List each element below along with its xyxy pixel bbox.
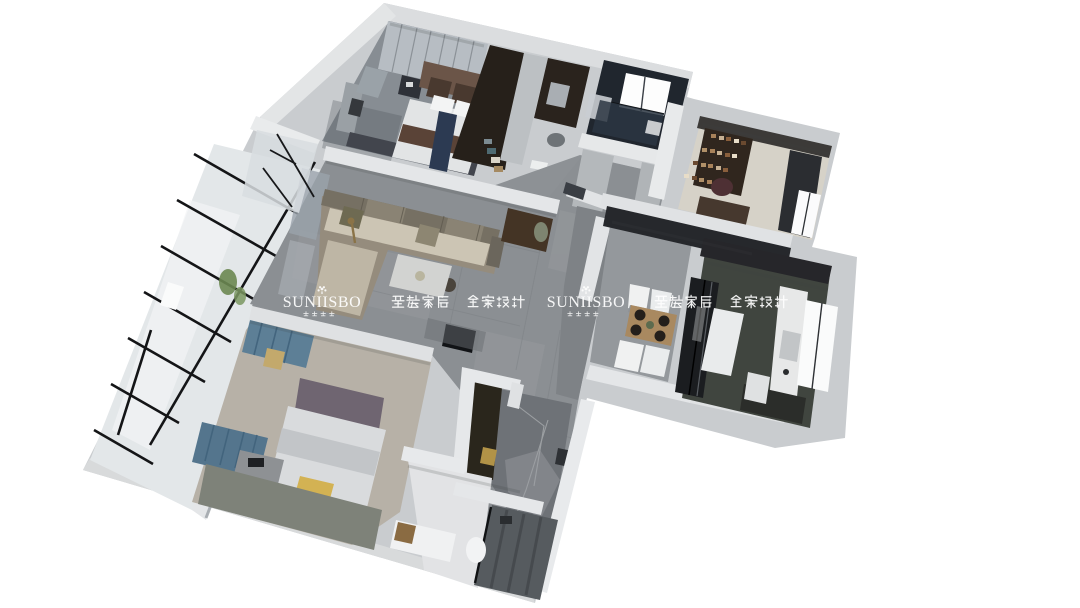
svg-text:SUNIISBO: SUNIISBO	[547, 294, 626, 311]
svg-text:SUNIISBO: SUNIISBO	[283, 294, 362, 311]
